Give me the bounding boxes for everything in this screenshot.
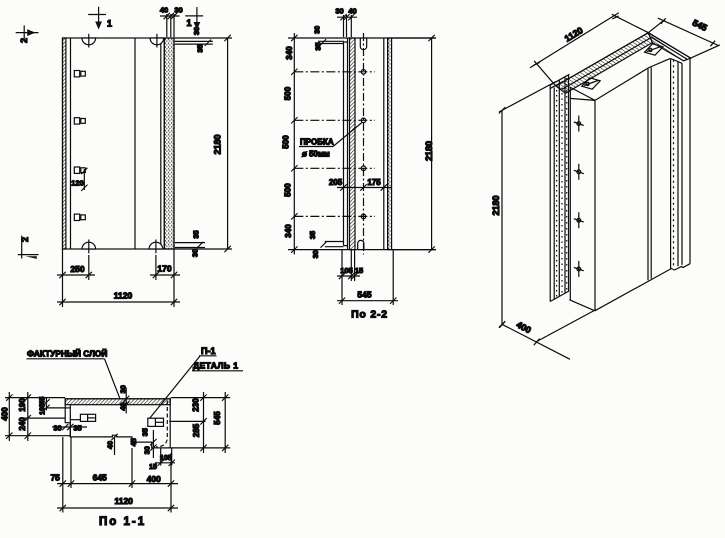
- svg-text:1: 1: [107, 19, 112, 29]
- svg-text:250: 250: [70, 264, 84, 274]
- svg-text:120: 120: [71, 179, 84, 188]
- svg-text:40: 40: [106, 441, 115, 449]
- svg-text:285: 285: [192, 423, 201, 437]
- svg-text:340: 340: [284, 224, 293, 238]
- svg-text:30: 30: [313, 26, 322, 34]
- svg-text:ПРОБКА: ПРОБКА: [300, 138, 334, 147]
- svg-text:400: 400: [147, 474, 161, 484]
- svg-text:500: 500: [282, 135, 291, 149]
- svg-text:П-1: П-1: [201, 346, 215, 356]
- svg-text:545: 545: [213, 411, 222, 425]
- svg-text:170: 170: [157, 264, 171, 274]
- svg-text:30: 30: [53, 424, 61, 433]
- svg-text:1: 1: [187, 18, 192, 28]
- svg-text:ДЕТАЛЬ 1: ДЕТАЛЬ 1: [193, 361, 238, 371]
- svg-text:35: 35: [141, 428, 150, 436]
- svg-text:545: 545: [691, 18, 709, 33]
- svg-text:400: 400: [1, 407, 10, 421]
- svg-text:2: 2: [20, 237, 30, 242]
- svg-text:30: 30: [335, 7, 343, 16]
- svg-text:105: 105: [40, 403, 47, 415]
- svg-text:35: 35: [308, 231, 317, 239]
- svg-text:40: 40: [348, 7, 356, 16]
- svg-text:75: 75: [50, 473, 60, 483]
- svg-text:500: 500: [284, 86, 293, 100]
- svg-text:2180: 2180: [213, 134, 223, 154]
- svg-text:40: 40: [160, 6, 168, 15]
- svg-text:35: 35: [314, 42, 323, 50]
- svg-text:ø 50мм: ø 50мм: [302, 150, 330, 159]
- svg-text:230: 230: [192, 398, 201, 412]
- svg-text:2: 2: [19, 38, 29, 43]
- svg-text:35: 35: [196, 44, 205, 52]
- svg-text:500: 500: [284, 183, 293, 197]
- svg-text:105: 105: [340, 266, 353, 275]
- svg-text:545: 545: [357, 290, 371, 300]
- svg-text:35: 35: [192, 230, 201, 238]
- svg-text:30: 30: [174, 6, 182, 15]
- svg-text:240: 240: [18, 417, 27, 431]
- svg-text:По 2-2: По 2-2: [351, 309, 388, 321]
- svg-text:35: 35: [73, 424, 81, 433]
- svg-text:340: 340: [285, 46, 294, 60]
- svg-text:45: 45: [129, 438, 138, 446]
- svg-text:2180: 2180: [424, 141, 434, 161]
- svg-text:30: 30: [118, 385, 127, 393]
- svg-text:175: 175: [367, 178, 381, 187]
- svg-text:205: 205: [329, 178, 343, 187]
- svg-text:ФАКТУРНЫЙ СЛОЙ: ФАКТУРНЫЙ СЛОЙ: [27, 348, 107, 359]
- svg-text:645: 645: [93, 473, 107, 483]
- svg-text:15: 15: [149, 464, 157, 471]
- svg-text:40: 40: [118, 402, 127, 410]
- svg-text:30: 30: [311, 250, 320, 258]
- svg-text:15: 15: [355, 266, 363, 275]
- svg-text:30: 30: [191, 249, 200, 257]
- svg-text:1120: 1120: [114, 291, 133, 301]
- svg-text:По 1-1: По 1-1: [99, 516, 146, 528]
- svg-text:190: 190: [18, 398, 27, 412]
- svg-text:2180: 2180: [491, 195, 501, 215]
- svg-text:105: 105: [160, 455, 172, 462]
- svg-text:1120: 1120: [114, 496, 133, 506]
- svg-text:30: 30: [142, 446, 151, 454]
